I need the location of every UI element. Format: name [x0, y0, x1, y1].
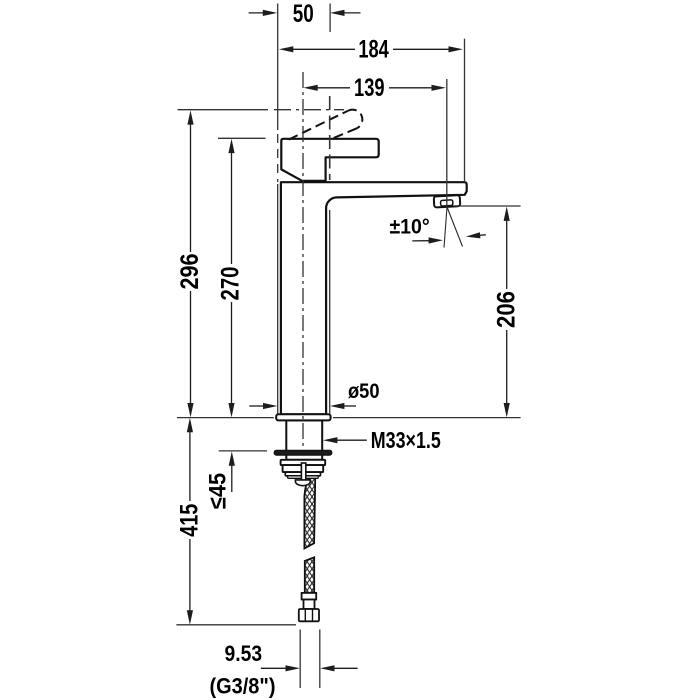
svg-text:296: 296	[176, 254, 204, 290]
svg-text:184: 184	[358, 36, 389, 64]
svg-text:(G3/8"): (G3/8")	[210, 673, 276, 698]
svg-text:415: 415	[175, 504, 203, 537]
svg-text:±10°: ±10°	[389, 215, 429, 238]
svg-text:50: 50	[293, 0, 314, 28]
svg-text:139: 139	[354, 74, 385, 102]
svg-text:206: 206	[493, 291, 521, 328]
svg-text:ø50: ø50	[348, 380, 380, 403]
svg-text:9.53: 9.53	[225, 641, 263, 666]
svg-text:M33×1.5: M33×1.5	[371, 427, 441, 453]
svg-text:270: 270	[217, 267, 245, 301]
svg-text:≤45: ≤45	[205, 473, 232, 509]
